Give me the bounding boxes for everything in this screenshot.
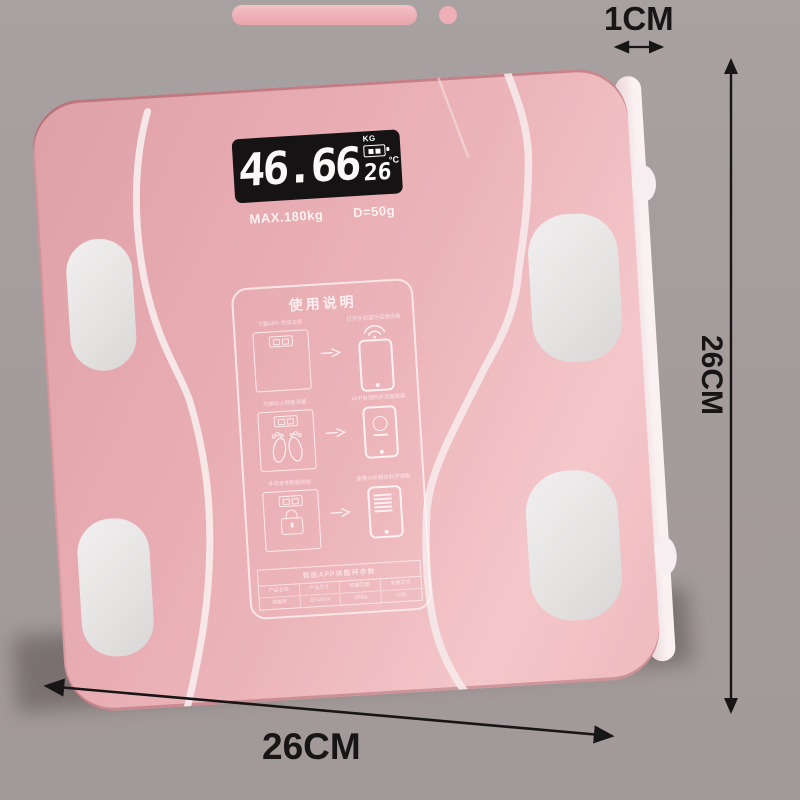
scale-side-view-bar [232, 5, 417, 25]
weight-readout: 46.66 [238, 138, 360, 198]
instruction-step-3: 多项身体数据指标 查看分析报告科学减脂 [252, 472, 419, 562]
electrode-pad-bottom-left [75, 516, 155, 658]
instruction-step-1: 下载APP·完成注册 打开手机蓝牙连接设备 [243, 312, 410, 402]
temperature-readout: 26 [364, 159, 392, 187]
step1-right-caption: 打开手机蓝牙连接设备 [346, 313, 400, 324]
spec-val-2: 26×26cm [300, 594, 341, 607]
weight-unit-label: KG [362, 134, 376, 144]
lock-icon [281, 517, 304, 535]
step3-left-caption: 多项身体数据指标 [268, 479, 312, 490]
step2-left-caption: 光脚站上秤面测量 [263, 399, 307, 410]
arrow-right-icon [318, 346, 343, 359]
electrode-pad-bottom-right [523, 468, 624, 623]
thickness-label: 1CM [604, 0, 674, 38]
phone-icon [358, 338, 395, 392]
scale-diagram-icon [252, 329, 312, 392]
spec-table: 智能APP体脂秤参数 产品名称 产品尺寸 称重范围 充电方式 体脂秤 26×26… [257, 560, 423, 611]
battery-icon [363, 144, 386, 157]
scale-glass-face: 46.66 KG °C 26 MAX.180kg D=50g 使用说明 下载AP… [30, 66, 662, 713]
feet-on-scale-icon [257, 409, 317, 472]
electrode-pad-top-left [64, 237, 138, 373]
lock-box-icon [262, 489, 322, 552]
scale-foot-dot [439, 6, 457, 24]
scale-body: 46.66 KG °C 26 MAX.180kg D=50g 使用说明 下载AP… [30, 66, 662, 713]
step3-right-caption: 查看分析报告科学减脂 [356, 473, 410, 484]
feet-icon [266, 426, 308, 466]
step1-left-caption: 下载APP·完成注册 [257, 319, 302, 330]
instruction-step-2: 光脚站上秤面测量 [248, 392, 415, 482]
instruction-panel: 使用说明 下载APP·完成注册 打开手机蓝牙连接设备 [231, 278, 433, 620]
product-image: 1CM 46.66 KG [0, 0, 800, 800]
electrode-pad-top-right [526, 211, 625, 364]
arrow-right-icon [323, 426, 348, 439]
wifi-icon [361, 323, 388, 339]
height-label: 26CM [694, 320, 728, 430]
thickness-arrow-icon [610, 40, 668, 54]
arrow-right-icon [328, 506, 353, 519]
phone-report-icon [367, 485, 404, 539]
step2-right-caption: APP自动同步测量数据 [351, 393, 405, 404]
spec-val-1: 体脂秤 [260, 596, 301, 609]
division-label: D=50g [353, 203, 396, 221]
spec-val-4: USB [381, 589, 422, 602]
width-label: 26CM [262, 726, 361, 768]
lcd-display: 46.66 KG °C 26 [231, 129, 403, 203]
phone-data-icon [362, 405, 399, 459]
spec-val-3: 180kg [340, 591, 381, 604]
